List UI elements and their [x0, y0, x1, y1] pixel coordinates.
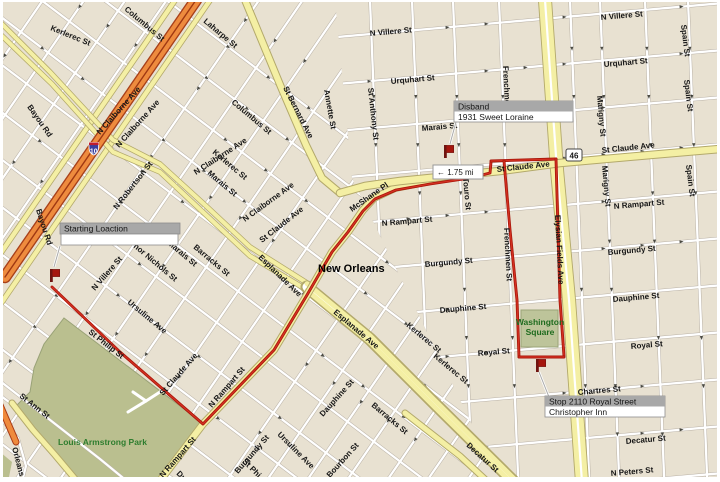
svg-text:10: 10 — [90, 149, 98, 156]
svg-text:46: 46 — [570, 152, 579, 161]
svg-text:New Orleans: New Orleans — [318, 263, 385, 275]
svg-text:Christopher Inn: Christopher Inn — [549, 407, 607, 417]
svg-text:Louis Armstrong Park: Louis Armstrong Park — [58, 437, 147, 447]
svg-text:← 1.75 mi: ← 1.75 mi — [437, 168, 474, 177]
svg-text:Disband: Disband — [458, 102, 489, 112]
svg-text:Square: Square — [526, 327, 555, 337]
svg-text:Washington: Washington — [516, 317, 564, 327]
svg-text:Starting Loaction: Starting Loaction — [64, 224, 128, 234]
svg-text:1931 Sweet Loraine: 1931 Sweet Loraine — [458, 112, 534, 122]
svg-text:Stop 2110 Royal Street: Stop 2110 Royal Street — [549, 397, 637, 407]
